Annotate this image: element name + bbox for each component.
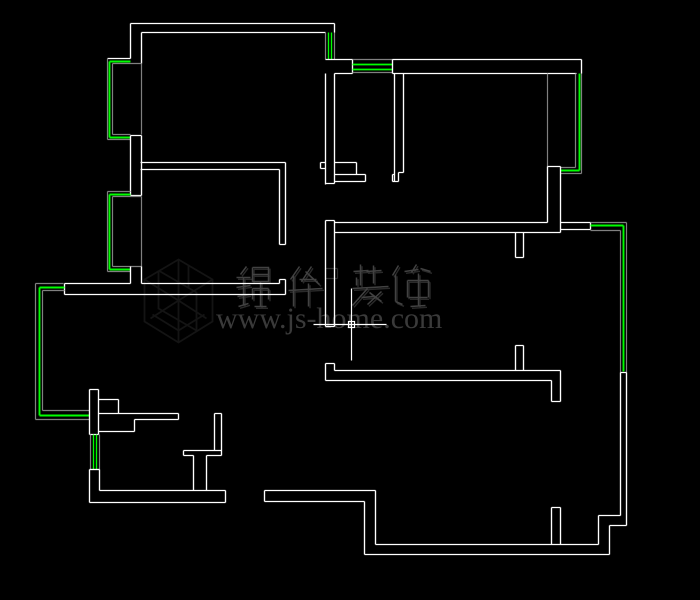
- svg-text:www.js-home.com: www.js-home.com: [216, 302, 442, 335]
